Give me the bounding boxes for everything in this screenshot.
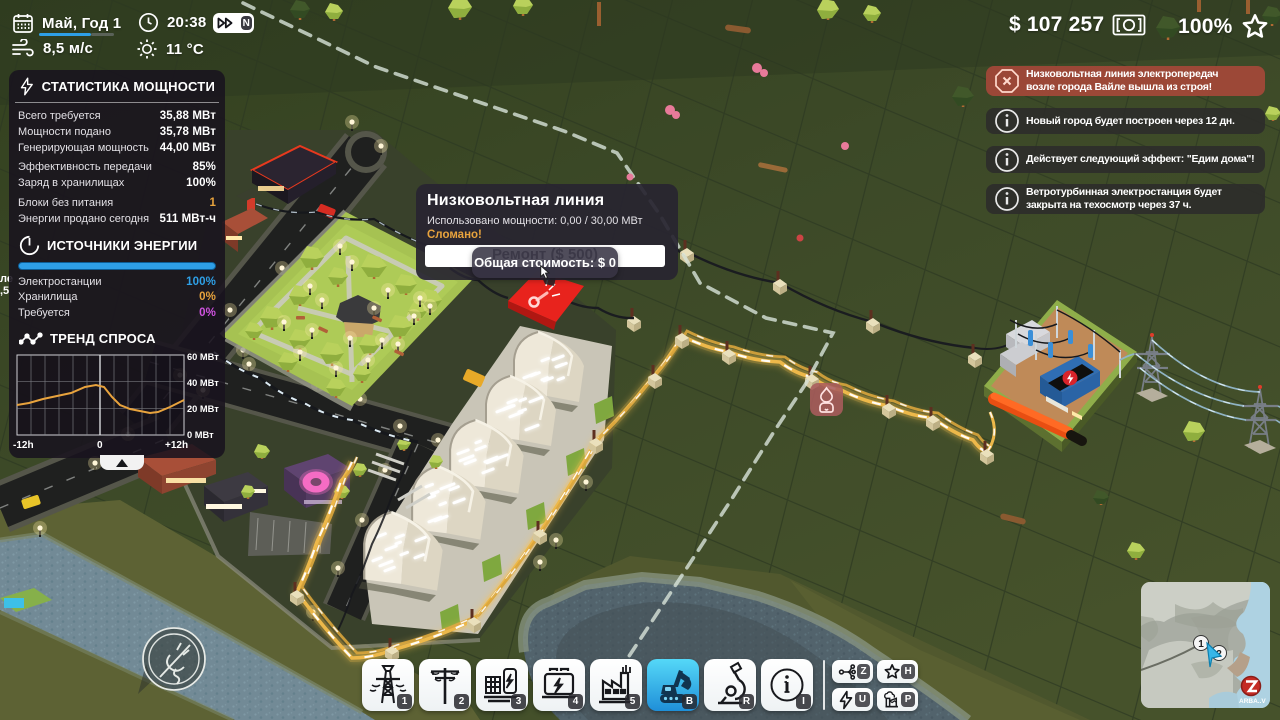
svg-text:40 МВт: 40 МВт <box>187 378 219 388</box>
svg-text:+12h: +12h <box>165 440 188 449</box>
svg-text:-12h: -12h <box>13 440 34 449</box>
svg-text:20 МВт: 20 МВт <box>187 404 219 414</box>
svg-text:0: 0 <box>97 440 103 449</box>
svg-text:0 МВт: 0 МВт <box>187 430 214 440</box>
svg-text:60 МВт: 60 МВт <box>187 353 219 362</box>
svg-text:1: 1 <box>1198 639 1204 650</box>
svg-text:ARBA..V: ARBA..V <box>1239 698 1266 705</box>
